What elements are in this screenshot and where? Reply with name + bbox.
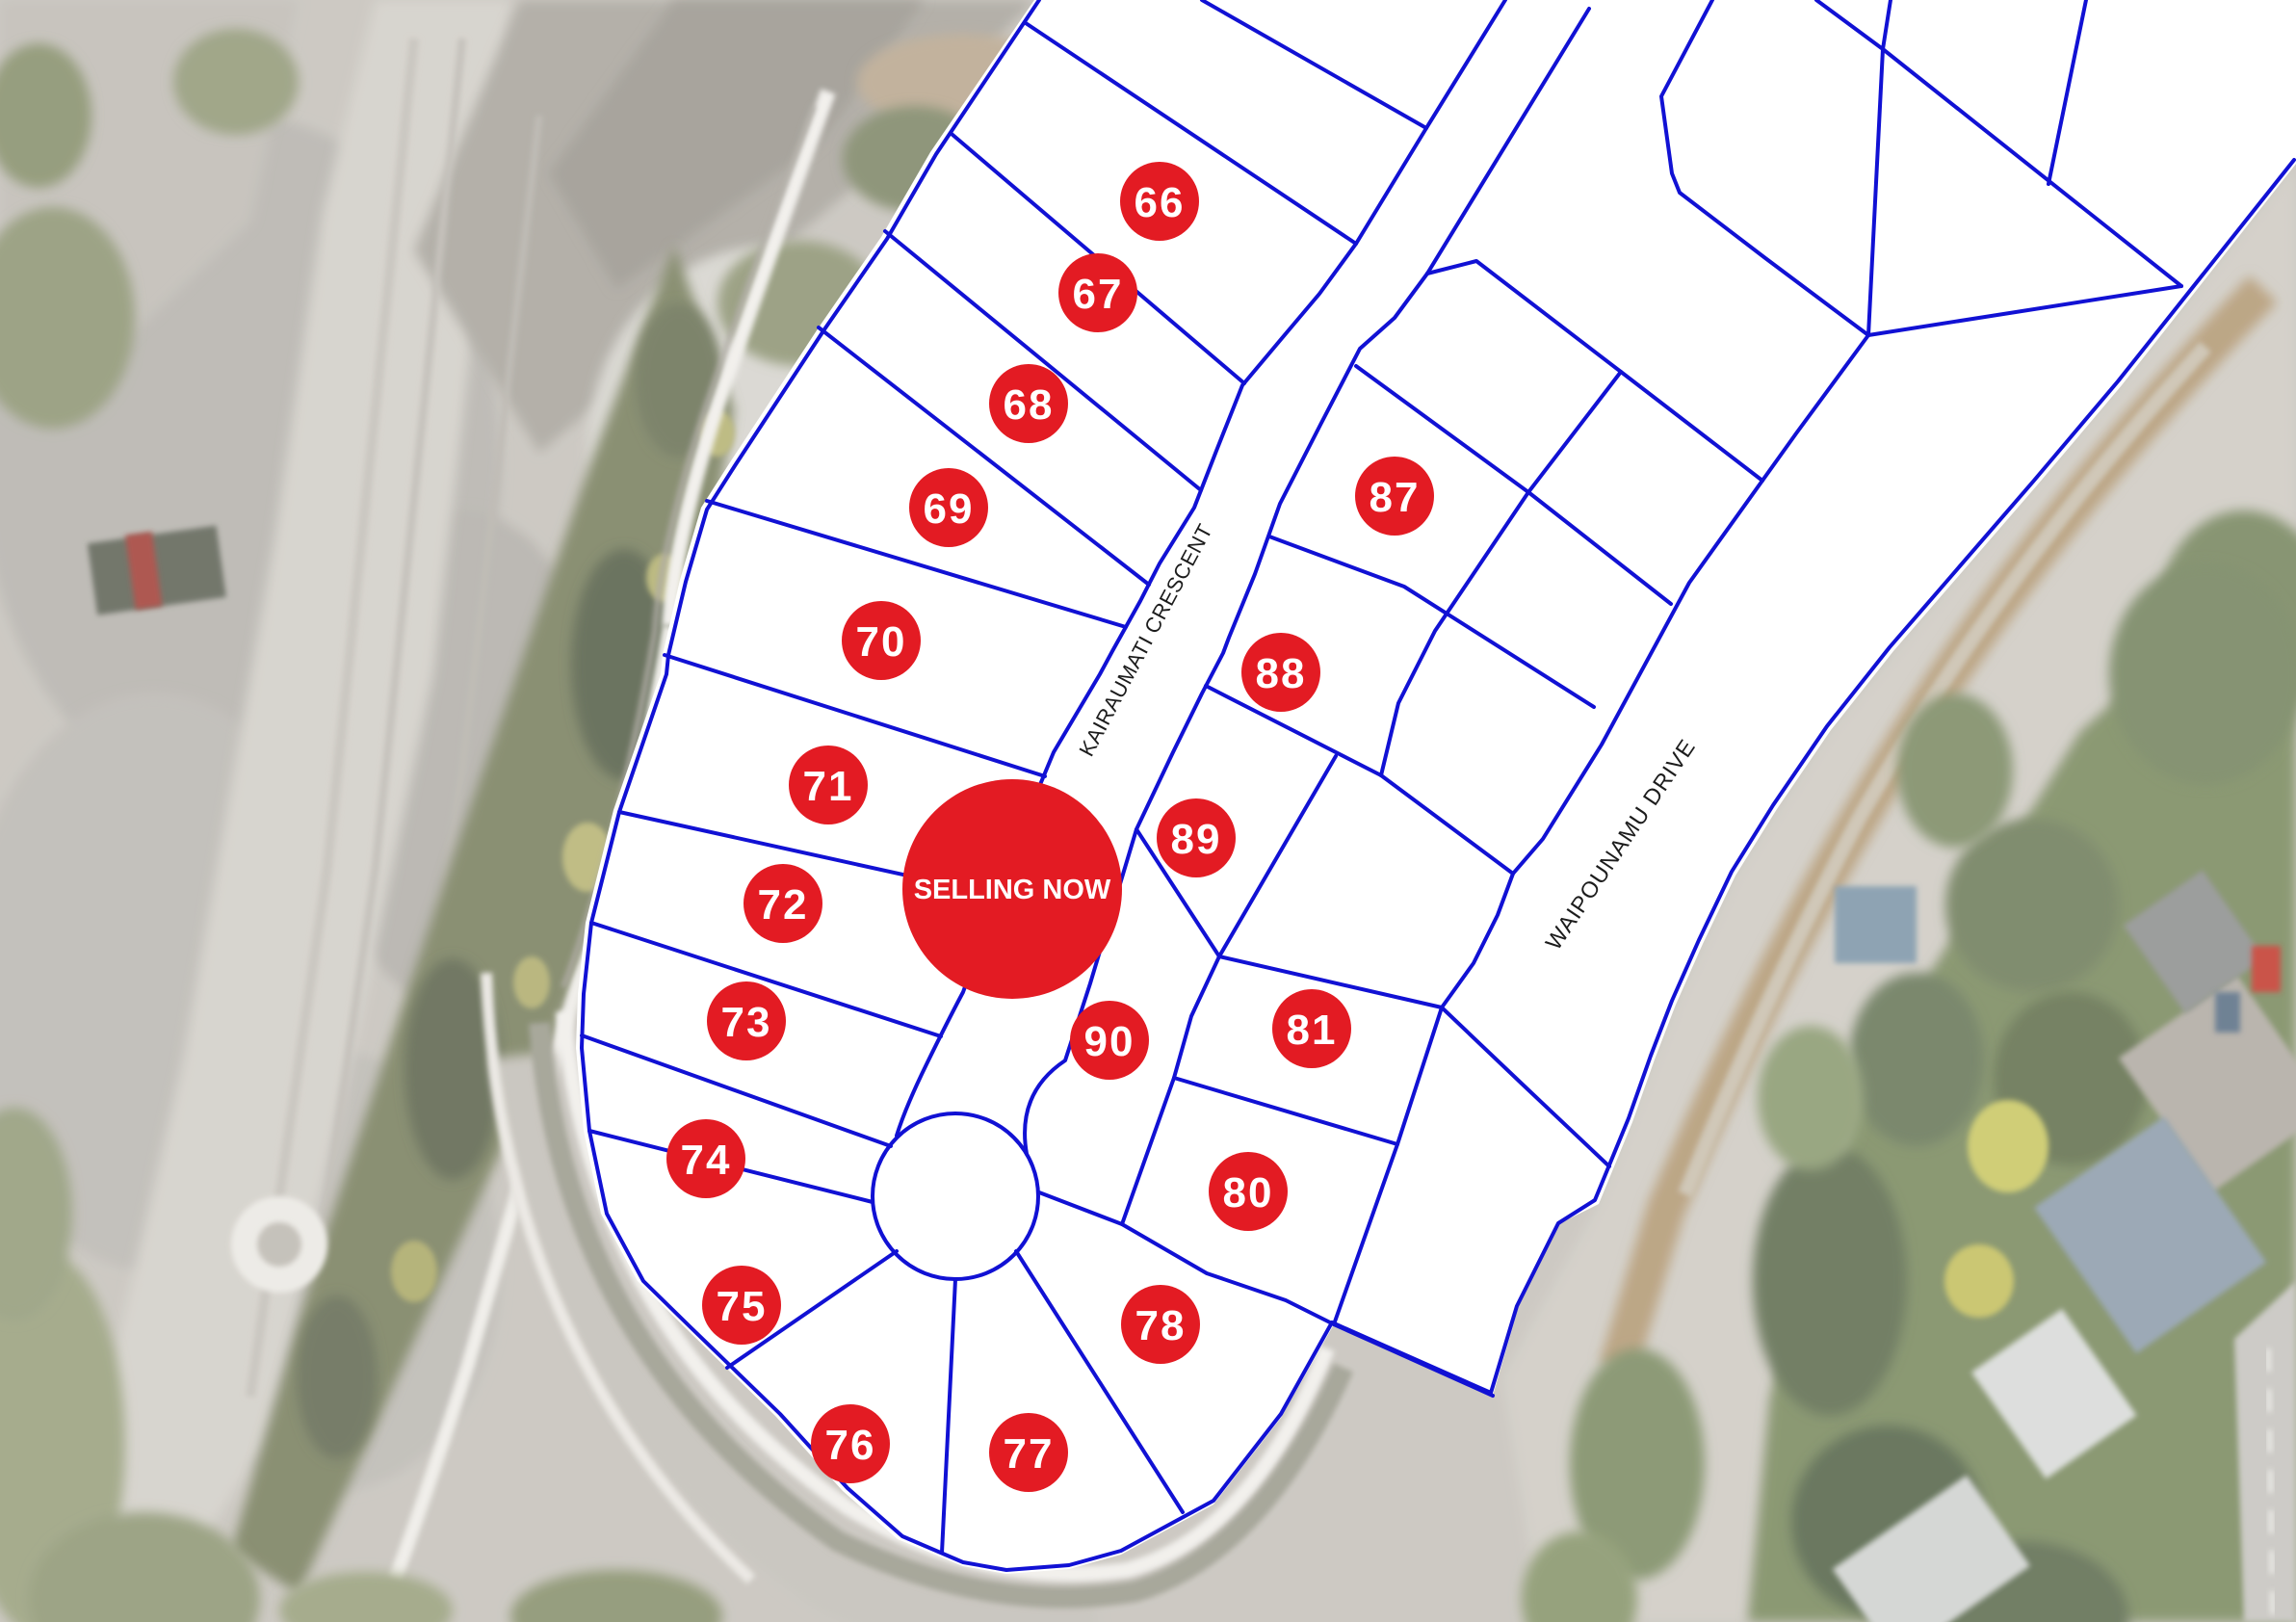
svg-text:72: 72 xyxy=(758,881,809,929)
svg-text:77: 77 xyxy=(1004,1430,1055,1478)
svg-text:80: 80 xyxy=(1223,1169,1274,1216)
svg-text:69: 69 xyxy=(924,485,975,533)
svg-text:87: 87 xyxy=(1370,474,1421,521)
svg-text:78: 78 xyxy=(1135,1302,1187,1349)
svg-text:75: 75 xyxy=(717,1283,768,1330)
svg-text:SELLING NOW: SELLING NOW xyxy=(914,875,1111,905)
svg-text:90: 90 xyxy=(1084,1018,1135,1065)
svg-text:66: 66 xyxy=(1135,179,1186,226)
svg-text:89: 89 xyxy=(1171,816,1222,863)
svg-text:71: 71 xyxy=(803,763,854,810)
svg-text:76: 76 xyxy=(825,1422,876,1469)
svg-text:81: 81 xyxy=(1287,1007,1338,1054)
svg-text:67: 67 xyxy=(1073,271,1124,318)
svg-text:74: 74 xyxy=(681,1137,732,1184)
svg-text:88: 88 xyxy=(1256,650,1307,697)
svg-text:70: 70 xyxy=(856,618,907,666)
svg-text:68: 68 xyxy=(1004,381,1055,429)
svg-text:73: 73 xyxy=(721,999,772,1046)
